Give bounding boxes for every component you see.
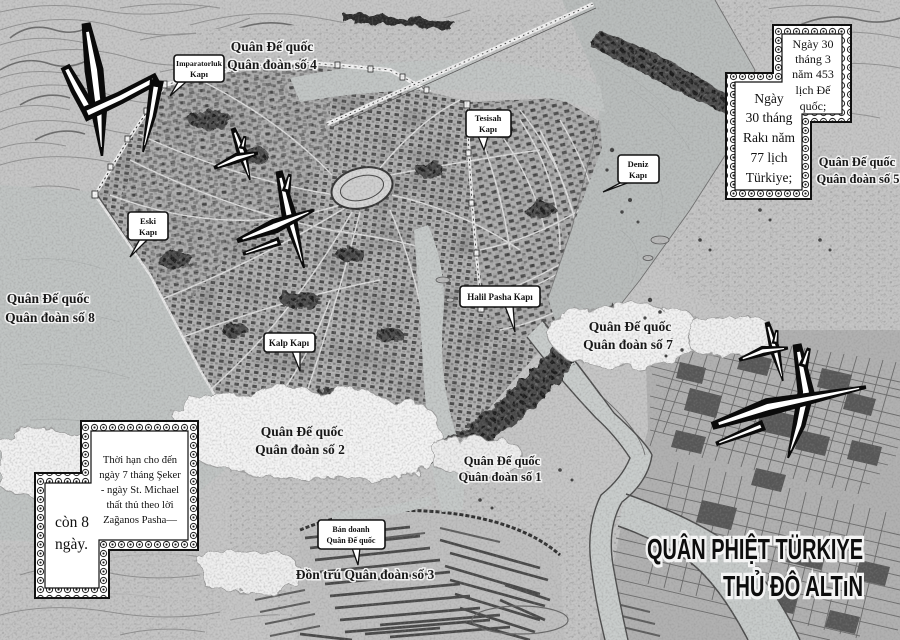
svg-text:Tesisah: Tesisah bbox=[475, 113, 502, 123]
svg-text:ngày 7 tháng Şeker: ngày 7 tháng Şeker bbox=[99, 470, 181, 481]
svg-text:Đồn trú Quân đoàn số 3: Đồn trú Quân đoàn số 3 bbox=[296, 567, 435, 582]
svg-text:QUÂN PHIỆT TÜRKIYE: QUÂN PHIỆT TÜRKIYE bbox=[647, 532, 863, 566]
svg-text:Rakı năm: Rakı năm bbox=[743, 130, 796, 145]
svg-text:Kapı: Kapı bbox=[479, 124, 498, 134]
svg-text:Quân Đế quốc: Quân Đế quốc bbox=[261, 424, 344, 439]
svg-text:lịch Đế: lịch Đế bbox=[796, 83, 832, 97]
svg-text:Ngày: Ngày bbox=[754, 91, 783, 106]
svg-text:còn 8: còn 8 bbox=[55, 514, 89, 531]
svg-text:Quân đoàn số 4: Quân đoàn số 4 bbox=[227, 57, 317, 72]
svg-text:thất thủ theo lời: thất thủ theo lời bbox=[106, 500, 173, 511]
svg-text:Kapı: Kapı bbox=[629, 170, 648, 180]
svg-text:Türkiye;: Türkiye; bbox=[746, 170, 793, 185]
svg-text:Zağanos Pasha—: Zağanos Pasha— bbox=[103, 515, 177, 526]
svg-text:Thời hạn cho đến: Thời hạn cho đến bbox=[103, 455, 178, 466]
svg-text:77 lịch: 77 lịch bbox=[750, 150, 787, 165]
svg-text:tháng 3: tháng 3 bbox=[795, 52, 831, 66]
svg-text:Quân đoàn số 8: Quân đoàn số 8 bbox=[5, 310, 95, 325]
svg-text:THỦ ĐÔ ALTıN: THỦ ĐÔ ALTıN bbox=[723, 569, 863, 603]
svg-text:Quân Đế quốc: Quân Đế quốc bbox=[327, 536, 376, 545]
svg-text:Quân Đế quốc: Quân Đế quốc bbox=[7, 291, 90, 306]
svg-text:Quân đoàn số 7: Quân đoàn số 7 bbox=[583, 337, 673, 352]
svg-text:Quân Đế quốc: Quân Đế quốc bbox=[231, 39, 314, 54]
svg-text:Quân Đế quốc: Quân Đế quốc bbox=[589, 319, 672, 334]
svg-text:ngày.: ngày. bbox=[55, 536, 88, 553]
svg-text:Quân đoàn số 5: Quân đoàn số 5 bbox=[816, 172, 899, 186]
svg-text:Kapı: Kapı bbox=[190, 69, 209, 79]
svg-text:Bán doanh: Bán doanh bbox=[332, 525, 370, 534]
svg-text:Kapı: Kapı bbox=[139, 227, 158, 237]
svg-text:Imparatorluk: Imparatorluk bbox=[176, 59, 223, 68]
svg-text:Quân đoàn số 1: Quân đoàn số 1 bbox=[458, 470, 541, 484]
svg-text:Halil Pasha Kapı: Halil Pasha Kapı bbox=[467, 292, 533, 302]
svg-text:Ngày 30: Ngày 30 bbox=[793, 37, 834, 51]
svg-text:Quân Đế quốc: Quân Đế quốc bbox=[464, 454, 541, 468]
svg-text:Deniz: Deniz bbox=[628, 159, 649, 169]
svg-text:Quân đoàn số 2: Quân đoàn số 2 bbox=[255, 442, 345, 457]
svg-text:năm 453: năm 453 bbox=[792, 67, 834, 81]
svg-text:- ngày St. Michael: - ngày St. Michael bbox=[101, 485, 179, 496]
svg-text:Quân Đế quốc: Quân Đế quốc bbox=[819, 155, 896, 169]
svg-text:30 tháng: 30 tháng bbox=[746, 110, 793, 125]
svg-text:Kalp Kapı: Kalp Kapı bbox=[269, 338, 310, 348]
svg-text:Eski: Eski bbox=[140, 216, 157, 226]
svg-text:quốc;: quốc; bbox=[800, 99, 827, 113]
